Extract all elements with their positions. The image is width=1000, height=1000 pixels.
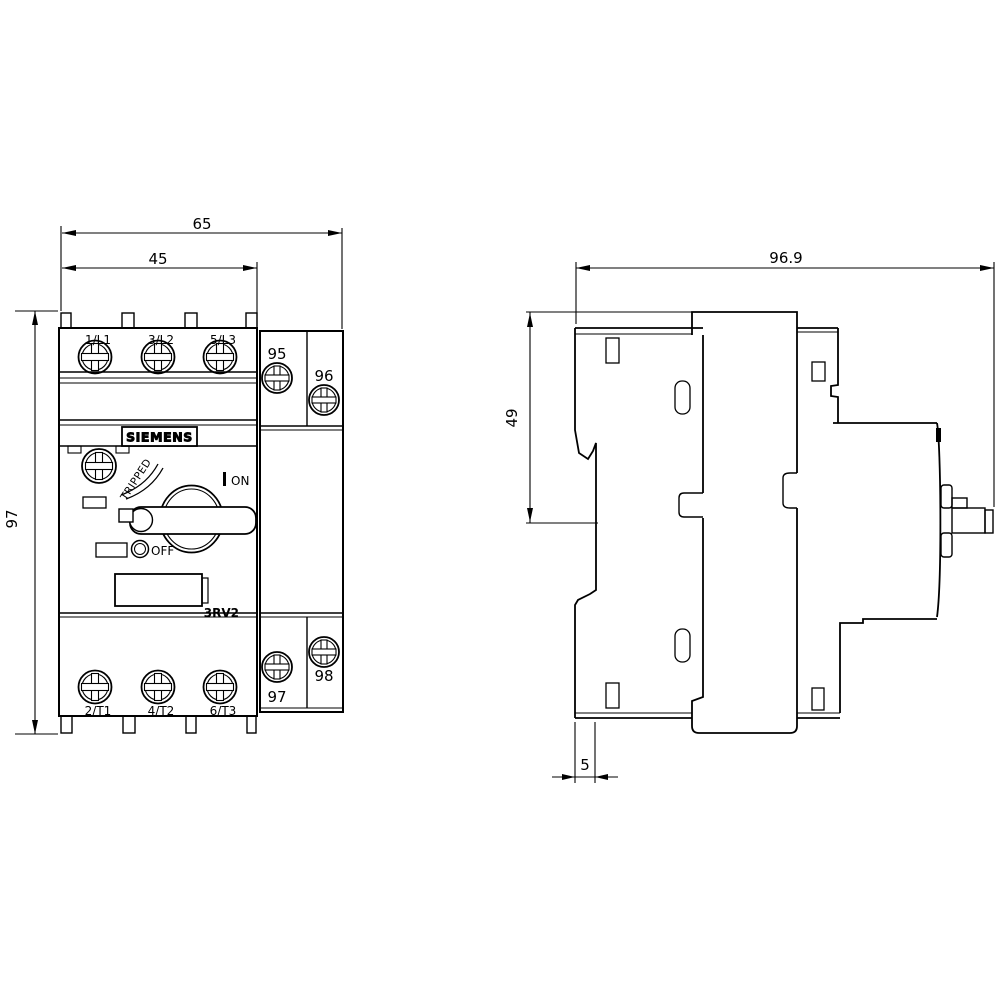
tripped-label: TRIPPED [118, 457, 154, 504]
dimensional-drawing-page: 1/L1 3/L2 5/L3 SIEMENS TRIPPED [0, 0, 1000, 1000]
aux-label-98: 98 [314, 667, 333, 685]
front-face-curve [937, 423, 940, 617]
terminal-label-2T1: 2/T1 [85, 704, 112, 718]
off-label: OFF [151, 544, 174, 558]
aux-label-95: 95 [267, 345, 286, 363]
housing-slot-b [812, 688, 824, 710]
rear-vent-slot-b [675, 381, 690, 414]
side-front-housing [797, 328, 993, 718]
control-face: TRIPPED ON OFF 3RV2 [68, 446, 256, 620]
screw-97-icon [262, 652, 292, 682]
aux-label-96: 96 [314, 367, 333, 385]
load-terminal-screws-icon [79, 671, 237, 704]
terminal-label-5L3: 5/L3 [210, 333, 236, 347]
dim-body-width-label: 45 [148, 250, 167, 268]
front-dimensions: 65 45 97 [3, 215, 342, 734]
tower-right-notch [783, 473, 797, 508]
aux-label-97: 97 [267, 688, 286, 706]
face-slot-b [116, 446, 129, 453]
nameplate-window [115, 574, 202, 606]
dim-total-width-label: 65 [192, 215, 211, 233]
aux-terminal-protrusion-icon [941, 485, 993, 557]
rear-vent-slot-c [675, 629, 690, 662]
screw-95-icon [262, 363, 292, 393]
on-label: ON [231, 474, 249, 488]
series-label: 3RV2 [204, 606, 239, 620]
dim-height-label: 97 [3, 509, 21, 528]
front-view: 1/L1 3/L2 5/L3 SIEMENS TRIPPED [3, 215, 343, 734]
side-center-tower [679, 312, 797, 733]
screw-4T2-icon [142, 671, 175, 704]
screw-98-icon [309, 637, 339, 667]
terminal-label-6T3: 6/T3 [210, 704, 237, 718]
face-slot-a [68, 446, 81, 453]
screw-6T3-icon [204, 671, 237, 704]
reset-dial-icon [82, 449, 116, 483]
face-slot-c [83, 497, 106, 508]
aux-switch-module: 95 96 97 98 [260, 331, 343, 712]
dim-back-depth-label: 49 [503, 408, 521, 427]
rear-vent-slot-a [606, 338, 619, 363]
dim-rail-width-label: 5 [580, 756, 590, 774]
housing-slot-a [812, 362, 825, 381]
siemens-3rv2-dimension-drawing: 1/L1 3/L2 5/L3 SIEMENS TRIPPED [0, 0, 1000, 1000]
off-position-circle-inner-icon [135, 544, 146, 555]
terminal-label-4T2: 4/T2 [148, 704, 175, 718]
side-dimensions: 96.9 49 5 [503, 249, 994, 783]
rear-vent-slot-d [606, 683, 619, 708]
housing-rib-detail [936, 428, 941, 442]
on-position-bar-icon [223, 472, 226, 486]
face-slot-d [96, 543, 127, 557]
dim-total-depth-label: 96.9 [769, 249, 802, 267]
side-view: 96.9 49 5 [503, 249, 994, 783]
tower-left-latch [679, 493, 703, 517]
screw-2T1-icon [79, 671, 112, 704]
rotary-knob-icon [119, 486, 256, 553]
terminal-label-3L2: 3/L2 [148, 333, 174, 347]
terminal-label-1L1: 1/L1 [85, 333, 111, 347]
brand-label: SIEMENS [126, 430, 193, 445]
brand-plate: SIEMENS [122, 427, 197, 446]
screw-96-icon [309, 385, 339, 415]
